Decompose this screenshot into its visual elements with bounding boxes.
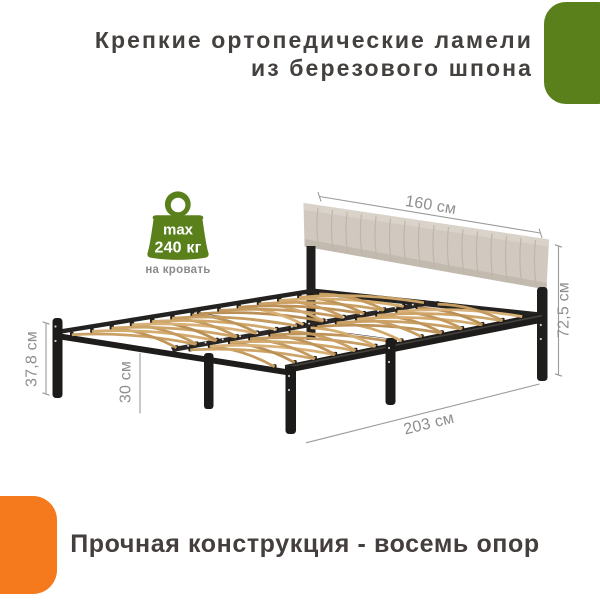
svg-text:72,5 см: 72,5 см	[556, 282, 573, 338]
svg-text:max: max	[163, 221, 194, 238]
svg-text:30 см: 30 см	[118, 361, 135, 403]
svg-text:37,8 см: 37,8 см	[24, 331, 41, 387]
svg-text:203 см: 203 см	[402, 410, 456, 439]
svg-text:на кровать: на кровать	[145, 264, 210, 276]
svg-text:240 кг: 240 кг	[154, 240, 201, 257]
